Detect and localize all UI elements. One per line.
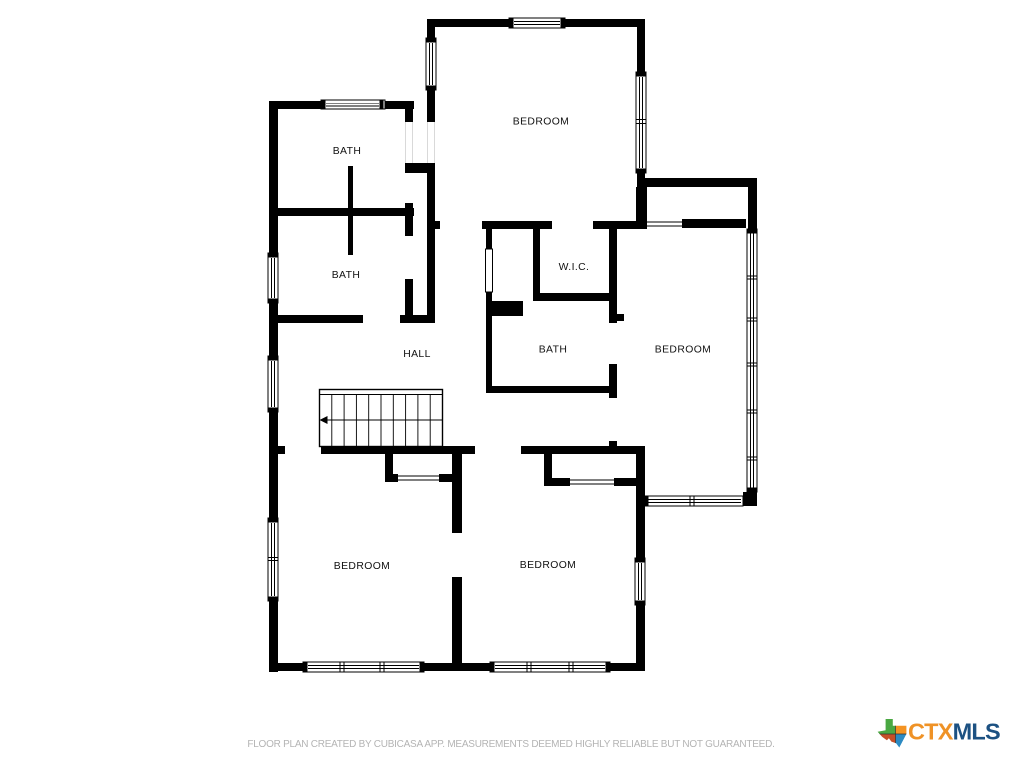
- svg-text:BEDROOM: BEDROOM: [334, 561, 391, 572]
- svg-text:BATH: BATH: [539, 345, 568, 356]
- svg-text:BEDROOM: BEDROOM: [520, 560, 577, 571]
- svg-text:CTXMLS: CTXMLS: [908, 719, 1000, 745]
- svg-text:BATH: BATH: [332, 270, 361, 281]
- svg-text:BATH: BATH: [333, 146, 362, 157]
- svg-text:BEDROOM: BEDROOM: [655, 345, 712, 356]
- svg-text:BEDROOM: BEDROOM: [513, 117, 570, 128]
- svg-text:HALL: HALL: [403, 349, 431, 360]
- svg-text:W.I.C.: W.I.C.: [559, 262, 590, 273]
- svg-text:FLOOR PLAN CREATED BY CUBICASA: FLOOR PLAN CREATED BY CUBICASA APP. MEAS…: [247, 739, 774, 750]
